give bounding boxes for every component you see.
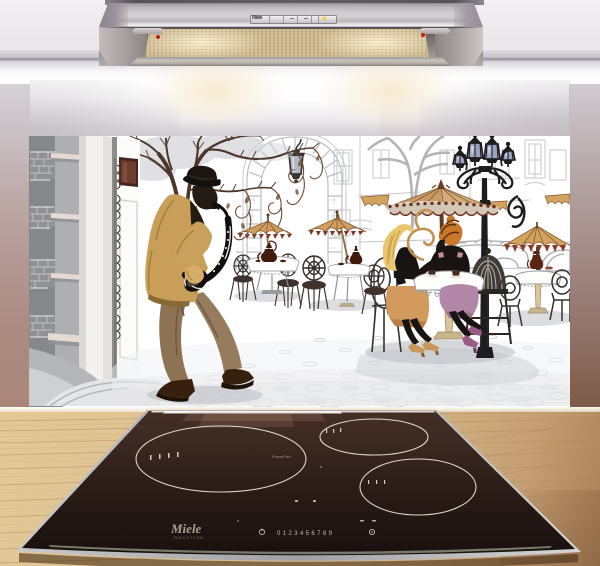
svg-text:Miele: Miele [170, 521, 202, 536]
svg-text:INDUCTION: INDUCTION [173, 535, 204, 540]
svg-text:0123456789: 0123456789 [277, 531, 334, 537]
svg-text:PowerFlex: PowerFlex [272, 454, 291, 459]
